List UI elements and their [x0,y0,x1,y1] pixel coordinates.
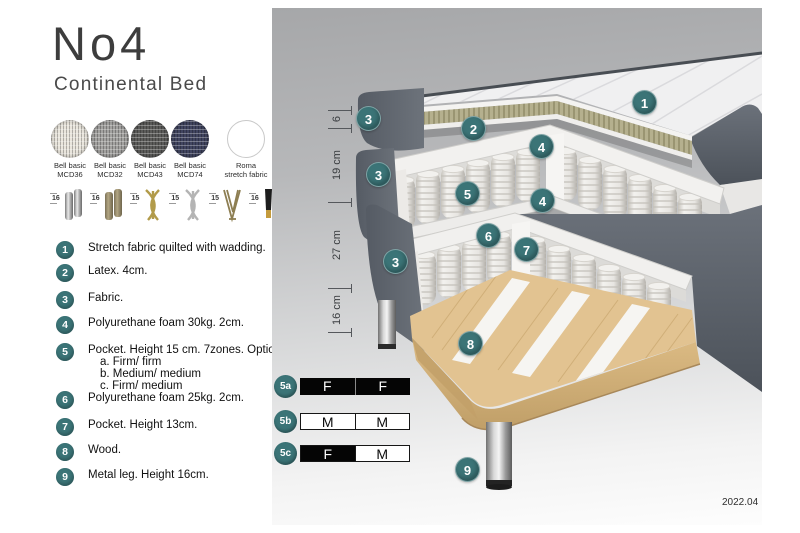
callout-1: 1 [632,90,657,115]
hairpin-leg-icon [221,186,245,224]
leg-option: 15 [130,186,166,224]
page-subtitle: Continental Bed [54,74,207,96]
callout-4b: 4 [530,188,555,213]
left-metal-leg [378,300,396,349]
fabric-swatches: Bell basicMCD36 Bell basicMCD32 Bell bas… [50,120,272,179]
silver-twist-legs-icon [181,186,205,224]
callout-4: 4 [529,134,554,159]
firmness-badge-5c: 5c [274,442,297,465]
callout-8: 8 [458,331,483,356]
feature-number: 5 [56,343,74,361]
feature-number: 4 [56,316,74,334]
fabric-swatch-icon [171,120,209,158]
leg-options: 16 16 15 15 15 [50,186,289,224]
feature-text: Polyurethane foam 25kg. 2cm. [88,392,244,404]
feature-option: c. Firm/ medium [100,380,182,392]
callout-3c: 3 [383,249,408,274]
feature-option: a. Firm/ firm [100,356,161,368]
feature-text: Metal leg. Height 16cm. [88,469,209,481]
dim-label-19: 19 cm [331,133,345,197]
fabric-swatch-icon [91,120,129,158]
leg-option: 15 [169,186,205,224]
fabric-swatch: Bell basicMCD43 [130,120,170,179]
callout-9: 9 [455,457,480,482]
feature-number: 2 [56,264,74,282]
firmness-badge-5a: 5a [274,375,297,398]
firmness-bar-5b: M M [300,413,410,430]
bed-cutaway-diagram: 1 2 3 4 3 5 4 6 7 3 8 9 6 19 cm 27 cm 16… [272,8,762,525]
feature-text: Pocket. Height 13cm. [88,419,197,431]
feature-number: 3 [56,291,74,309]
feature-number: 9 [56,468,74,486]
feature-option: b. Medium/ medium [100,368,201,380]
callout-7: 7 [514,237,539,262]
leg-option: 16 [90,186,126,224]
feature-text: Pocket. Height 15 cm. 7zones. Option: [88,344,284,356]
feature-text: Stretch fabric quilted with wadding. [88,242,266,254]
firmness-bar-5c: F M [300,445,410,462]
feature-number: 8 [56,443,74,461]
feature-number: 7 [56,418,74,436]
firmness-bar-5a: F F [300,378,410,395]
fabric-swatch: Bell basicMCD74 [170,120,210,179]
fabric-swatch-icon [227,120,265,158]
leg-option: 15 [209,186,245,224]
feature-text: Wood. [88,444,121,456]
chrome-cylinder-legs-icon [62,186,86,224]
front-metal-leg [486,422,512,490]
fabric-swatch: Bell basicMCD32 [90,120,130,179]
feature-text: Fabric. [88,292,123,304]
feature-number: 1 [56,241,74,259]
dim-label-16: 16 cm [331,278,345,342]
callout-6: 6 [476,223,501,248]
dim-label-27: 27 cm [331,213,345,277]
fabric-swatch-icon [51,120,89,158]
fabric-swatch: Romastretch fabric [220,120,272,179]
callout-2: 2 [461,116,486,141]
version-date: 2022.04 [722,497,758,508]
page-title: No4 [52,16,150,71]
callout-3b: 3 [366,162,391,187]
fabric-swatch-icon [131,120,169,158]
firmness-badge-5b: 5b [274,410,297,433]
gold-twist-legs-icon [141,186,165,224]
feature-text: Polyurethane foam 30kg. 2cm. [88,317,244,329]
leg-option: 16 [50,186,86,224]
feature-text: Latex. 4cm. [88,265,147,277]
feature-number: 6 [56,391,74,409]
fabric-swatch: Bell basicMCD36 [50,120,90,179]
callout-5: 5 [455,181,480,206]
callout-3: 3 [356,106,381,131]
wood-cylinder-legs-icon [102,186,126,224]
